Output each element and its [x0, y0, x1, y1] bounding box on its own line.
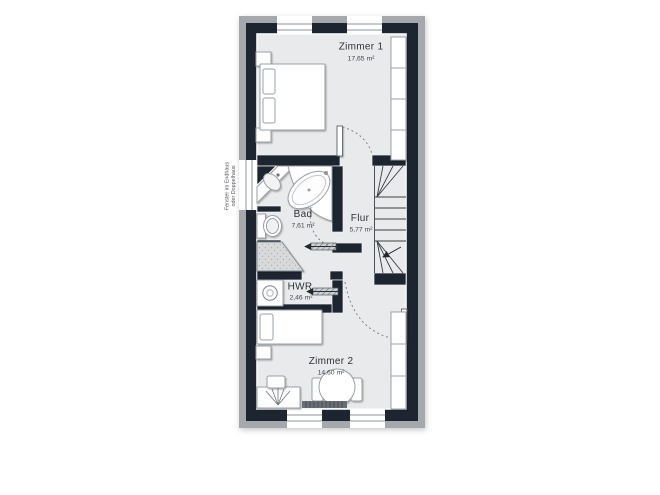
- room-area-bad: 7,61 m²: [291, 223, 315, 230]
- floor-plan: Zimmer 1 17,65 m² Bad 7,61 m² Flur 5,77 …: [0, 0, 660, 495]
- pillow: [260, 314, 273, 340]
- room-label-bad: Bad: [294, 209, 313, 220]
- room-label-flur: Flur: [351, 213, 370, 224]
- nightstand: [256, 346, 271, 359]
- window-icon: [287, 409, 322, 428]
- room-area-flur: 5,77 m²: [349, 227, 373, 234]
- swing-door-leaf: [337, 126, 343, 156]
- room-area-zimmer2: 14,60 m²: [318, 370, 346, 377]
- window-icon: [277, 16, 312, 35]
- wardrobe: [391, 37, 406, 160]
- wardrobe: [391, 312, 406, 409]
- window-note-line2: oder Doppelhaus: [231, 165, 237, 206]
- room-label-zimmer2: Zimmer 2: [309, 356, 354, 367]
- window-icon: [350, 409, 385, 428]
- radiator: [302, 401, 347, 408]
- floor-plan-page: Zimmer 1 17,65 m² Bad 7,61 m² Flur 5,77 …: [0, 0, 660, 495]
- room-label-hwr: HWR: [288, 282, 313, 293]
- desk: [257, 387, 300, 408]
- toilet: [257, 214, 282, 238]
- window-note-line1: Fenster im Endhaus: [225, 162, 231, 211]
- room-area-zimmer1: 17,65 m²: [348, 56, 376, 63]
- washing-machine: [257, 280, 283, 306]
- room-area-hwr: 2,46 m²: [289, 295, 313, 302]
- double-bed: [256, 52, 325, 142]
- desk-chair: [267, 376, 285, 388]
- pillow: [263, 69, 275, 94]
- window-icon: [239, 160, 258, 210]
- pillow: [263, 98, 275, 123]
- room-label-zimmer1: Zimmer 1: [339, 42, 384, 53]
- window-icon: [347, 16, 382, 35]
